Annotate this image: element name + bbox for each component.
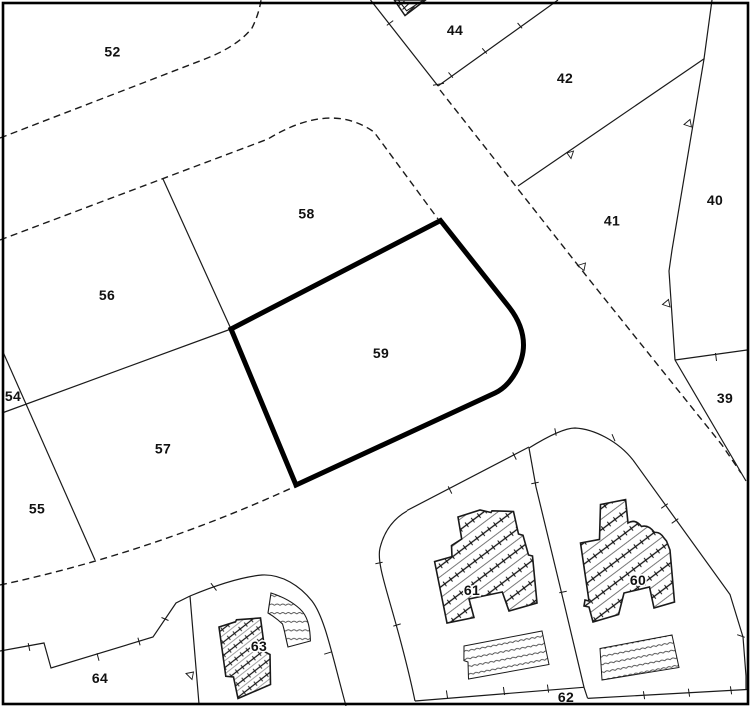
svg-text:56: 56 xyxy=(99,287,115,303)
svg-text:57: 57 xyxy=(155,441,171,457)
svg-text:62: 62 xyxy=(558,689,574,705)
svg-text:42: 42 xyxy=(557,70,573,86)
svg-text:64: 64 xyxy=(92,670,108,686)
svg-text:44: 44 xyxy=(447,22,463,38)
svg-text:61: 61 xyxy=(464,582,480,598)
svg-text:59: 59 xyxy=(373,345,389,361)
svg-text:55: 55 xyxy=(29,501,45,517)
svg-text:39: 39 xyxy=(717,390,733,406)
svg-text:40: 40 xyxy=(707,192,723,208)
svg-text:41: 41 xyxy=(604,213,620,229)
svg-text:60: 60 xyxy=(630,572,646,588)
svg-text:58: 58 xyxy=(298,206,314,222)
svg-text:54: 54 xyxy=(5,388,21,404)
svg-text:63: 63 xyxy=(251,638,267,654)
svg-text:52: 52 xyxy=(104,44,120,60)
